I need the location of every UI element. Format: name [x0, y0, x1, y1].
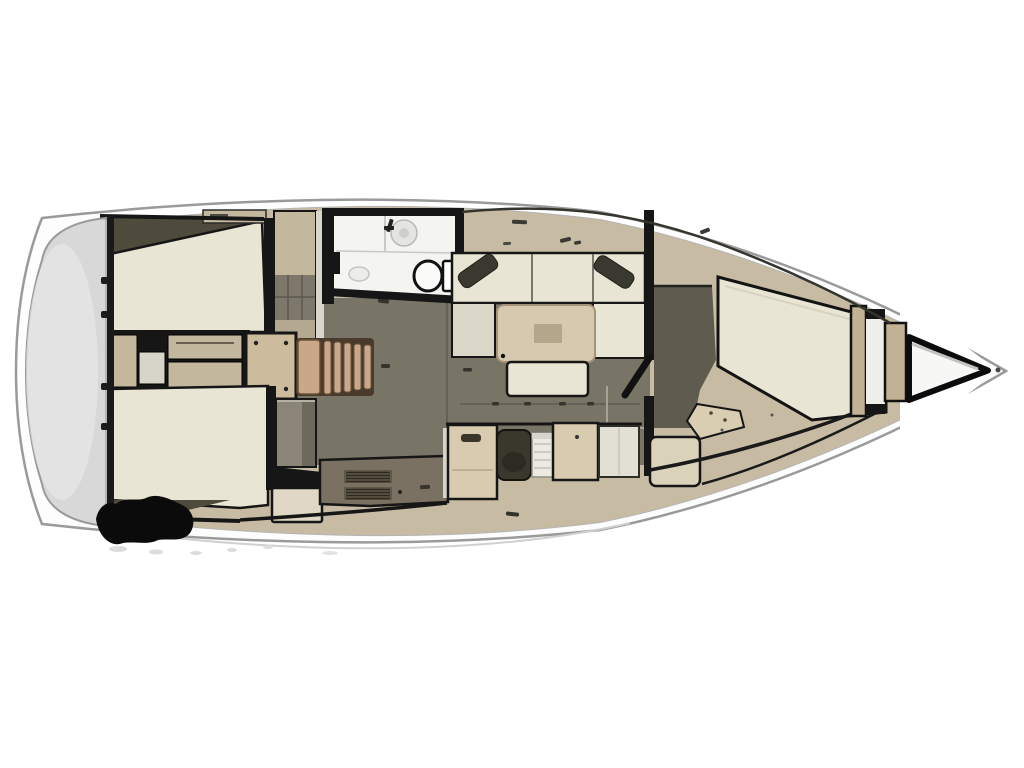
corridor-locker-c: [168, 362, 242, 388]
aft-stbd-berth: [110, 386, 268, 508]
nav-locker: [553, 423, 598, 480]
galley-knob: [398, 490, 402, 494]
salon-table-inlay: [534, 324, 562, 343]
aft-stbd-wall: [266, 386, 276, 470]
stern-wall: [106, 216, 114, 528]
head-door-hinge: [326, 252, 340, 274]
table-leg-dot: [501, 354, 505, 358]
berth-headboard: [851, 306, 906, 416]
aft-port-wall: [264, 218, 274, 348]
nav-panel: [599, 426, 639, 477]
yacht-floor-plan-canvas: [0, 0, 1024, 768]
bow-fitting: [996, 368, 1001, 373]
galley-handle: [420, 485, 430, 490]
aft-cabin-port: [100, 210, 324, 349]
head-wall-top: [328, 208, 462, 216]
settee-cushion-left: [452, 303, 495, 357]
companionway-steps: [296, 338, 374, 396]
galley: [320, 456, 448, 506]
yacht-floor-plan: [0, 0, 1024, 768]
salon-bench: [507, 362, 588, 396]
corridor-locker-b: [168, 335, 242, 359]
stbd-cabinet: [276, 399, 316, 467]
settee-cushion-right: [593, 303, 645, 358]
nav-cabinet: [448, 425, 497, 499]
toilet-bowl: [414, 261, 442, 291]
chart-table: [532, 433, 553, 477]
nav-seat: [497, 430, 531, 480]
shower-drain: [349, 267, 369, 281]
head-compartment: [322, 208, 464, 304]
corridor-step-pad: [139, 352, 165, 384]
wardrobe: [274, 211, 316, 347]
